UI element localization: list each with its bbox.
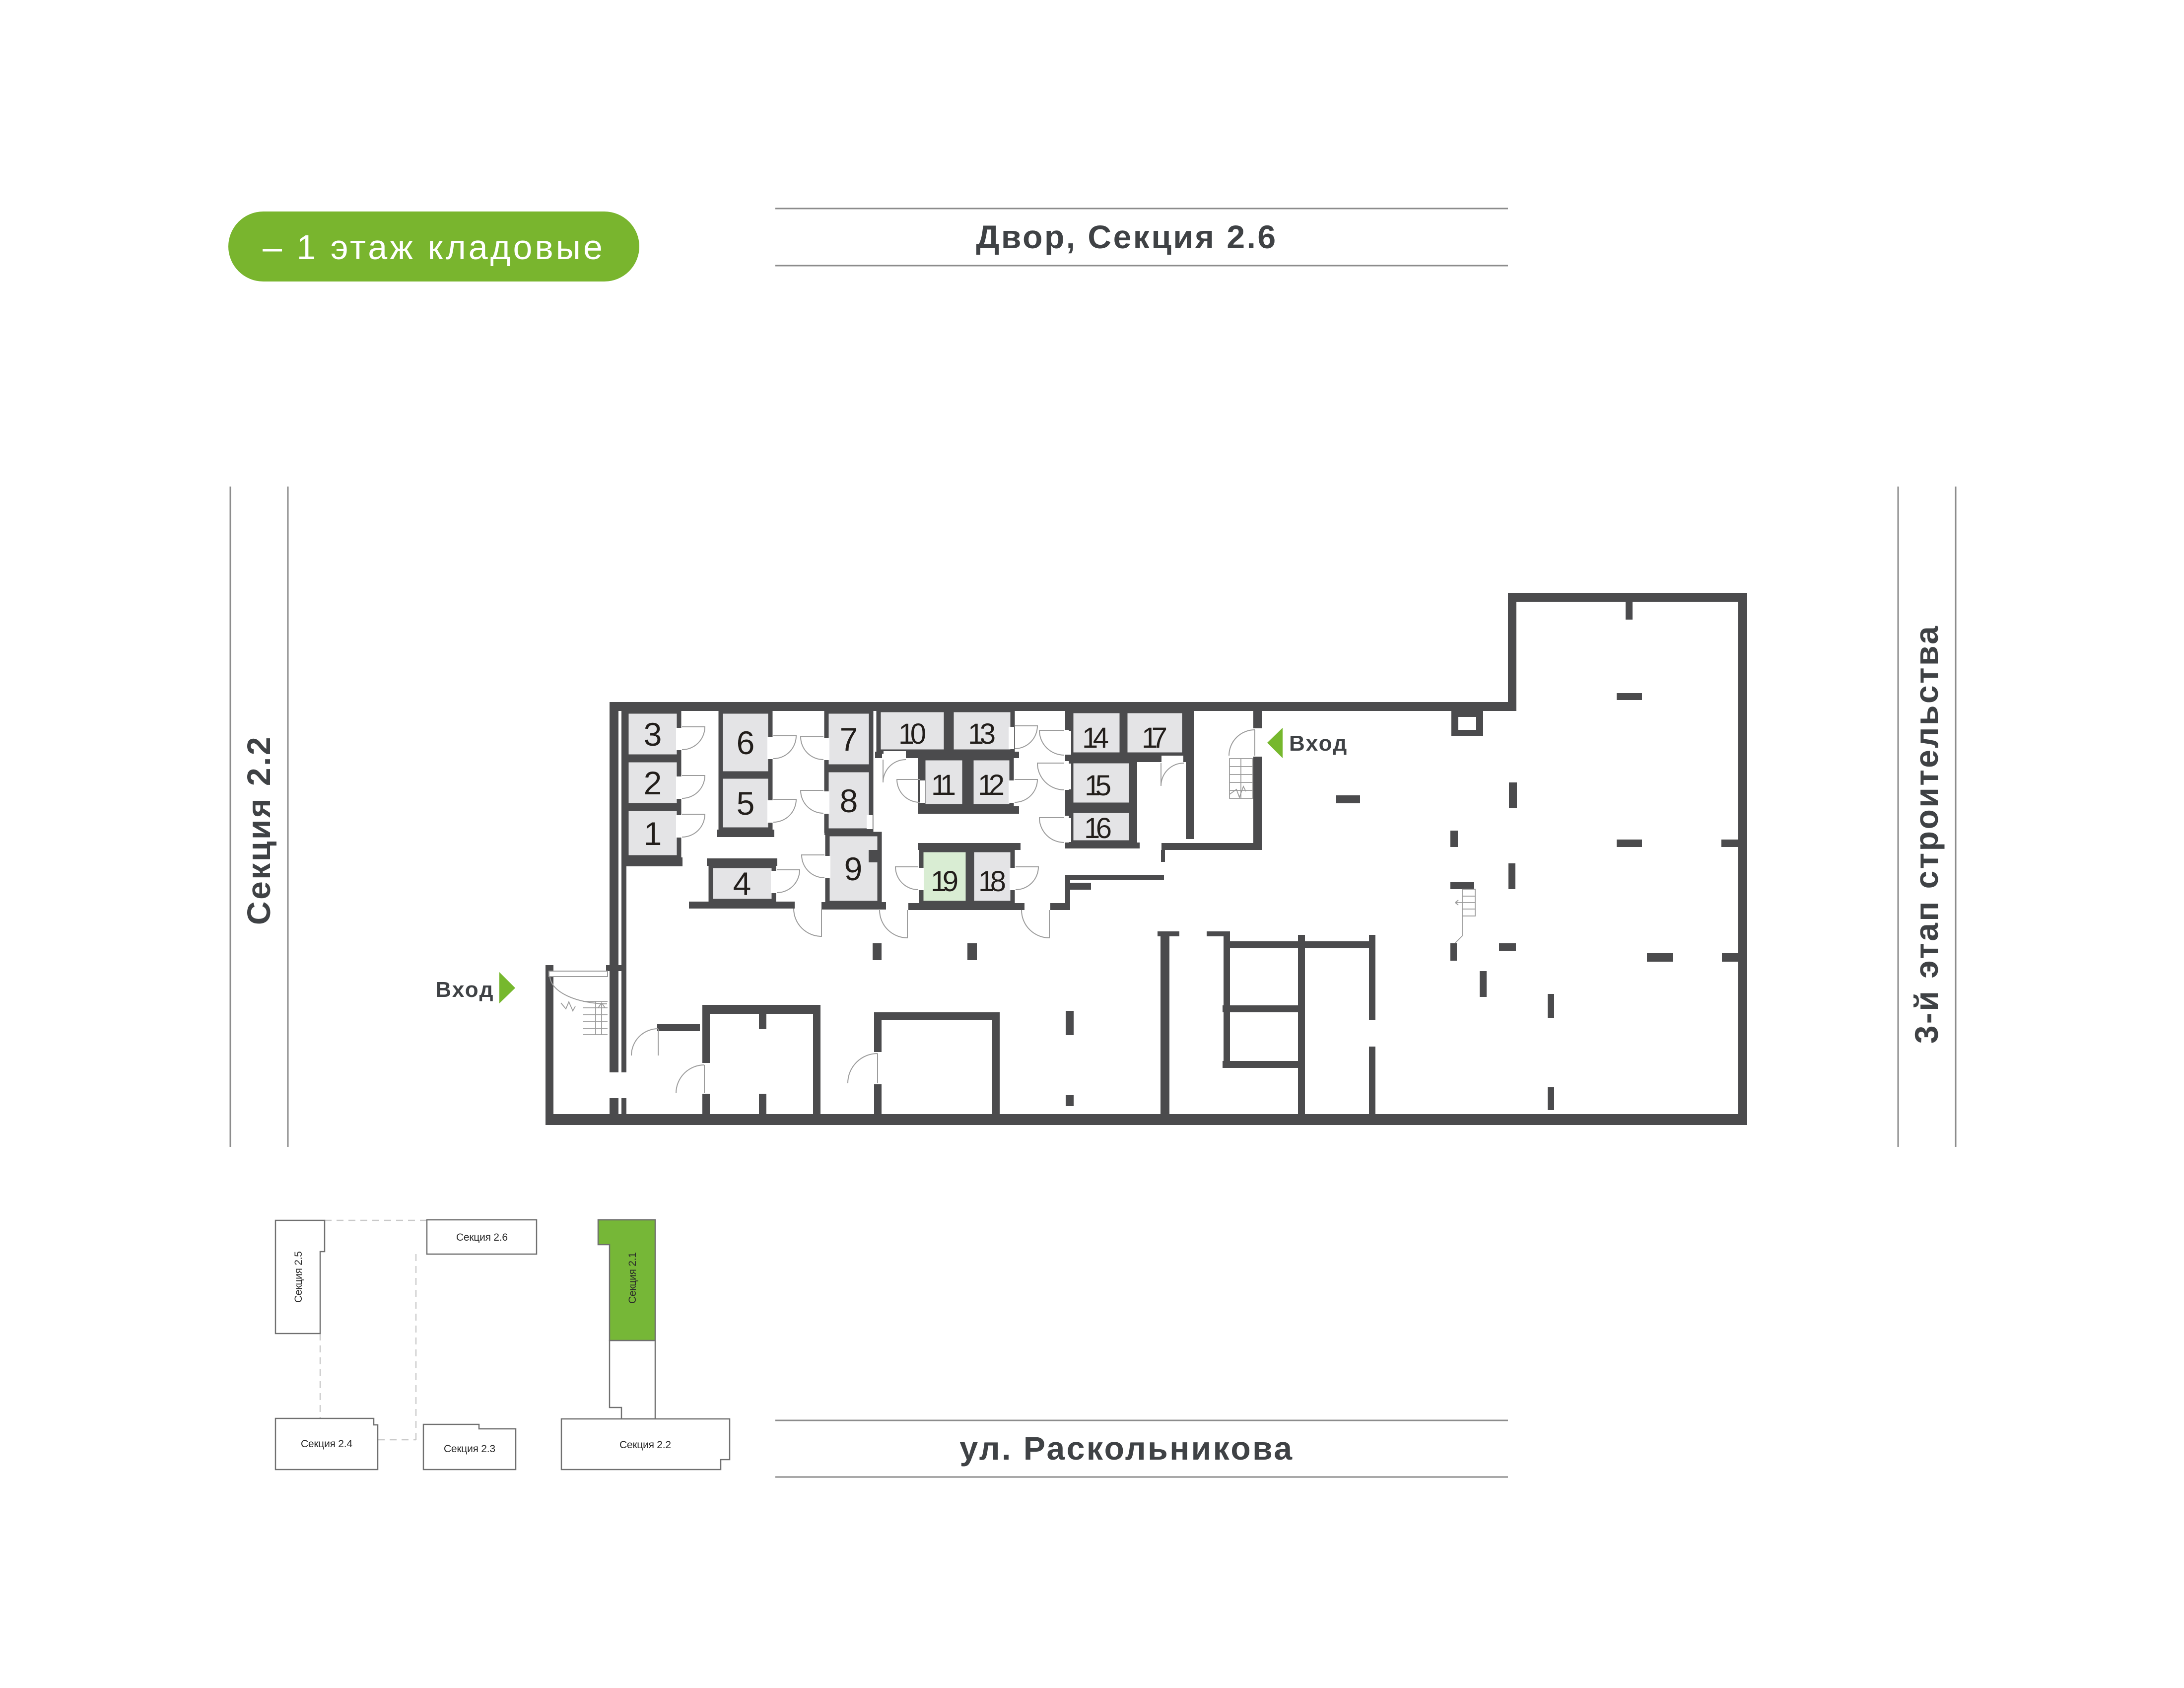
svg-text:10: 10 [898, 718, 926, 750]
svg-text:Вход: Вход [1289, 731, 1348, 756]
svg-text:8: 8 [840, 782, 858, 819]
svg-text:Двор, Секция 2.6: Двор, Секция 2.6 [976, 218, 1277, 255]
svg-text:Вход: Вход [435, 978, 494, 1002]
svg-text:13: 13 [968, 718, 996, 750]
svg-text:16: 16 [1084, 812, 1112, 844]
svg-text:3-й этап строительства: 3-й этап строительства [1908, 625, 1945, 1044]
svg-text:Секция 2.4: Секция 2.4 [301, 1438, 352, 1450]
svg-text:Секция 2.5: Секция 2.5 [293, 1251, 304, 1303]
svg-text:12: 12 [978, 769, 1005, 801]
svg-text:19: 19 [931, 865, 958, 898]
svg-text:18: 18 [978, 865, 1006, 898]
svg-text:– 1 этаж кладовые: – 1 этаж кладовые [263, 228, 605, 267]
svg-text:Секция 2.2: Секция 2.2 [240, 735, 277, 925]
svg-text:ул. Раскольникова: ул. Раскольникова [959, 1430, 1294, 1467]
svg-text:3: 3 [644, 716, 662, 753]
svg-text:14: 14 [1082, 722, 1109, 754]
svg-text:Секция 2.3: Секция 2.3 [444, 1443, 495, 1455]
svg-text:15: 15 [1085, 770, 1111, 802]
svg-text:6: 6 [737, 724, 755, 761]
svg-text:Секция 2.6: Секция 2.6 [456, 1232, 508, 1243]
svg-text:7: 7 [840, 721, 858, 758]
svg-text:11: 11 [931, 769, 956, 801]
svg-text:9: 9 [844, 850, 863, 887]
svg-text:2: 2 [644, 765, 662, 801]
svg-text:4: 4 [733, 865, 751, 902]
svg-text:Секция 2.1: Секция 2.1 [627, 1252, 638, 1304]
svg-text:Секция 2.2: Секция 2.2 [619, 1439, 671, 1451]
svg-text:1: 1 [644, 815, 662, 852]
svg-text:5: 5 [737, 785, 755, 822]
svg-text:17: 17 [1142, 722, 1167, 754]
